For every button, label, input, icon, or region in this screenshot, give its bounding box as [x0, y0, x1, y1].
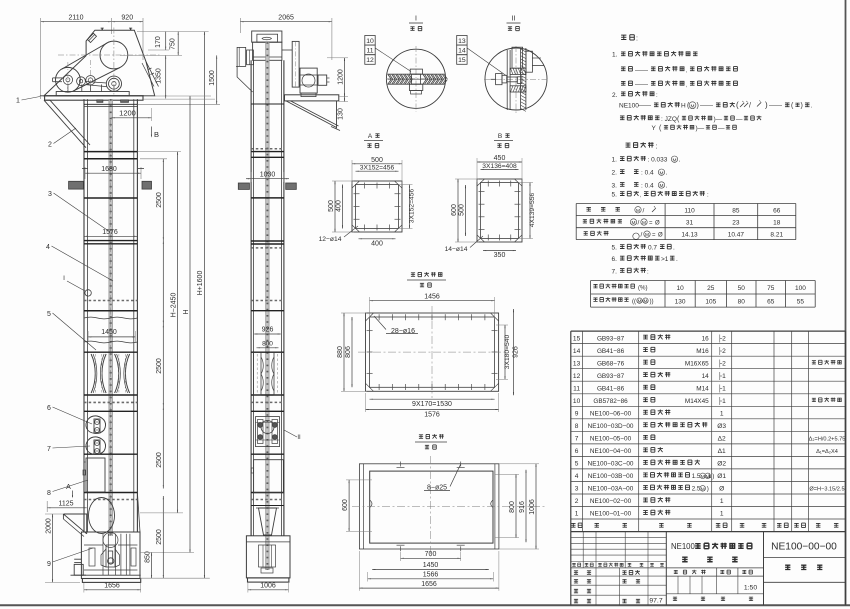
svg-text:NE100−05−00: NE100−05−00: [590, 436, 632, 443]
svg-text:700: 700: [425, 551, 437, 558]
svg-text:Δ₁=Δ₂X4: Δ₁=Δ₂X4: [816, 449, 838, 455]
svg-text:2065: 2065: [278, 15, 294, 22]
svg-text:)—: )—: [714, 116, 723, 123]
svg-text:M: M: [701, 474, 705, 480]
svg-text:10: 10: [366, 38, 374, 45]
svg-text:Ø: Ø: [719, 486, 724, 493]
svg-text:M: M: [632, 220, 636, 226]
svg-text:M: M: [691, 103, 695, 109]
svg-text:4X139=556: 4X139=556: [529, 193, 536, 228]
svg-text:——: ——: [638, 103, 652, 110]
svg-text:1: 1: [16, 98, 20, 105]
svg-text:Δ2: Δ2: [718, 436, 726, 443]
svg-text:8: 8: [575, 423, 579, 430]
svg-text:NE100−06−00: NE100−06−00: [590, 410, 632, 417]
svg-text:,: ,: [686, 82, 687, 88]
svg-text:2: 2: [575, 498, 579, 505]
svg-text:)—: )—: [696, 125, 705, 132]
svg-text:NE100−01−00: NE100−01−00: [590, 511, 632, 518]
svg-text:1656: 1656: [421, 581, 437, 588]
svg-text:├2: ├2: [718, 359, 727, 367]
svg-text:4: 4: [575, 473, 579, 480]
svg-text:M: M: [638, 299, 642, 305]
svg-text:916: 916: [519, 501, 526, 513]
svg-text:1450: 1450: [101, 329, 117, 336]
svg-text:├2: ├2: [718, 334, 727, 342]
svg-text:8: 8: [47, 490, 51, 497]
svg-text:I: I: [415, 16, 417, 23]
svg-text:A: A: [66, 484, 71, 491]
svg-text:1450: 1450: [423, 562, 439, 569]
svg-text:): ): [765, 101, 768, 110]
svg-text:800: 800: [509, 501, 516, 513]
svg-text:920: 920: [121, 15, 133, 22]
svg-text:926: 926: [262, 327, 274, 334]
svg-text:(%): (%): [638, 284, 648, 291]
svg-text:2500: 2500: [156, 358, 163, 374]
svg-text:1.: 1.: [612, 52, 618, 59]
svg-text:15: 15: [458, 57, 466, 64]
svg-text:600: 600: [451, 204, 458, 216]
svg-text:9X170=1530: 9X170=1530: [412, 401, 452, 408]
svg-text::: :: [636, 36, 638, 43]
svg-text:: 0.4: : 0.4: [641, 170, 654, 177]
svg-text:I: I: [63, 275, 65, 282]
svg-text:1006: 1006: [529, 499, 536, 515]
svg-text:M: M: [636, 208, 640, 214]
svg-text:2500: 2500: [156, 192, 163, 208]
svg-text:10.47: 10.47: [728, 232, 745, 239]
svg-text:3.: 3.: [612, 182, 618, 189]
svg-text:130: 130: [337, 108, 344, 120]
svg-text:7.: 7.: [612, 268, 618, 275]
svg-text:500: 500: [371, 157, 383, 164]
svg-text:—: —: [736, 116, 743, 123]
svg-text:.: .: [666, 182, 668, 189]
svg-text:12−ø14: 12−ø14: [319, 236, 342, 243]
svg-text:3: 3: [48, 191, 52, 198]
svg-text:25: 25: [707, 285, 715, 292]
svg-text:: 0.033: : 0.033: [648, 157, 668, 164]
svg-text:1.: 1.: [612, 157, 618, 164]
svg-text:10: 10: [676, 285, 684, 292]
svg-text:>1: >1: [661, 256, 669, 263]
svg-text:13: 13: [458, 38, 466, 45]
svg-text:H: H: [681, 103, 686, 110]
svg-text:55: 55: [797, 299, 805, 306]
svg-text:.: .: [676, 256, 678, 263]
svg-text:5: 5: [575, 461, 579, 468]
svg-text:3X180=540: 3X180=540: [504, 335, 511, 370]
svg-text:├2: ├2: [718, 347, 727, 355]
svg-text:5.: 5.: [612, 245, 618, 252]
svg-text:NE100−03A−00: NE100−03A−00: [588, 486, 634, 493]
svg-text:1:50: 1:50: [744, 584, 757, 591]
svg-text:1030: 1030: [260, 171, 276, 178]
svg-text:1656: 1656: [104, 583, 120, 590]
svg-text:1200: 1200: [337, 69, 344, 85]
svg-text:/: /: [638, 220, 640, 227]
svg-text:: 0.4: : 0.4: [641, 182, 654, 189]
svg-text:350: 350: [494, 252, 506, 259]
svg-text:Ø=H−3.15/2.5: Ø=H−3.15/2.5: [809, 487, 844, 493]
svg-text:28−ø16: 28−ø16: [391, 328, 415, 335]
svg-text:NE100−03B−00: NE100−03B−00: [588, 473, 634, 480]
svg-text:M: M: [660, 183, 664, 189]
svg-text:1350: 1350: [156, 68, 163, 84]
svg-text:5: 5: [47, 311, 51, 318]
svg-text:66: 66: [773, 208, 781, 215]
svg-text:M14X45: M14X45: [685, 398, 709, 405]
svg-text:NE100: NE100: [671, 542, 696, 551]
svg-text:/: /: [641, 232, 643, 239]
svg-text:100: 100: [795, 285, 806, 292]
svg-text:75: 75: [767, 285, 775, 292]
svg-text:14: 14: [458, 47, 466, 54]
svg-text:/: /: [749, 103, 751, 110]
svg-text:NE100−03C−00: NE100−03C−00: [588, 461, 634, 468]
svg-text:1576: 1576: [424, 411, 440, 418]
svg-text:1: 1: [720, 498, 724, 505]
svg-text:): ): [697, 103, 699, 110]
svg-text:): ): [801, 103, 803, 110]
svg-text:2110: 2110: [69, 15, 84, 22]
svg-text:9: 9: [575, 410, 579, 417]
svg-text:GB68−76: GB68−76: [597, 360, 625, 367]
svg-text:2000: 2000: [45, 518, 52, 534]
svg-text:13: 13: [573, 360, 581, 367]
svg-text:Ø3: Ø3: [717, 423, 726, 430]
svg-text:Ø: Ø: [655, 221, 660, 227]
svg-text:1456: 1456: [424, 293, 440, 300]
svg-text:6: 6: [47, 405, 51, 412]
svg-text:3X152=456: 3X152=456: [360, 165, 395, 172]
svg-text:450: 450: [494, 155, 506, 162]
svg-text:400: 400: [335, 200, 342, 212]
svg-text:12: 12: [573, 373, 581, 380]
svg-text:——: ——: [635, 67, 649, 74]
svg-text:/: /: [643, 207, 645, 214]
svg-text:14: 14: [573, 348, 581, 355]
svg-text:9: 9: [47, 561, 51, 568]
svg-text:1125: 1125: [58, 501, 73, 508]
svg-text:14.13: 14.13: [681, 232, 698, 239]
svg-text:400: 400: [371, 240, 383, 247]
svg-text:3: 3: [575, 486, 579, 493]
svg-text:806: 806: [345, 346, 352, 358]
svg-text:1: 1: [575, 511, 579, 518]
svg-text:1566: 1566: [423, 572, 439, 579]
svg-text:——: ——: [769, 103, 783, 110]
svg-text:Ø1: Ø1: [717, 473, 726, 480]
svg-text:NE100−00−00: NE100−00−00: [771, 542, 837, 553]
svg-text:NE100: NE100: [619, 103, 639, 110]
svg-text:M: M: [644, 299, 648, 305]
svg-text:15: 15: [573, 335, 581, 342]
svg-text:2.5: 2.5: [692, 486, 701, 493]
svg-text:.: .: [666, 170, 668, 177]
svg-text:├1: ├1: [718, 372, 727, 380]
svg-text:12: 12: [366, 57, 374, 64]
svg-text:3X136=408: 3X136=408: [482, 163, 517, 170]
svg-text:18: 18: [773, 220, 781, 227]
svg-text:130: 130: [675, 299, 686, 306]
svg-text:1: 1: [720, 410, 724, 417]
svg-text:M16: M16: [696, 348, 709, 355]
svg-text:): ): [707, 486, 709, 493]
svg-text:M: M: [706, 474, 710, 480]
svg-text:Ø: Ø: [658, 233, 663, 239]
svg-text:7: 7: [575, 436, 579, 443]
svg-text:=: =: [652, 233, 656, 239]
svg-text:B: B: [154, 130, 159, 139]
svg-text:II: II: [297, 435, 301, 441]
svg-text:GB93−87: GB93−87: [597, 335, 625, 342]
svg-text:750: 750: [170, 38, 177, 50]
svg-text:2.: 2.: [612, 170, 618, 177]
svg-text:105: 105: [705, 299, 716, 306]
svg-text:1006: 1006: [260, 583, 276, 590]
svg-text:,: ,: [686, 68, 687, 74]
svg-text:Δ₂=H/0.2+5.75: Δ₂=H/0.2+5.75: [809, 437, 846, 443]
svg-text:NE100−04−00: NE100−04−00: [590, 448, 632, 455]
svg-text:16: 16: [702, 335, 710, 342]
svg-text:M: M: [645, 232, 649, 238]
svg-text:H+1600: H+1600: [197, 271, 204, 296]
svg-text:4: 4: [46, 244, 50, 251]
svg-text:1500: 1500: [209, 70, 216, 86]
svg-text:0.7: 0.7: [648, 245, 657, 252]
svg-text:GB41−86: GB41−86: [597, 348, 625, 355]
svg-text:3X152=456: 3X152=456: [409, 189, 416, 224]
svg-text:2500: 2500: [156, 529, 163, 545]
svg-text:├1: ├1: [718, 384, 727, 392]
svg-text:170: 170: [155, 36, 162, 48]
svg-text:): ): [712, 473, 714, 480]
svg-text:1200: 1200: [119, 108, 136, 117]
svg-text:10: 10: [573, 398, 581, 405]
svg-text:.: .: [679, 157, 681, 164]
svg-text:850: 850: [144, 551, 151, 563]
svg-text:2: 2: [48, 142, 52, 149]
svg-text:600: 600: [342, 499, 349, 511]
svg-text:GB5782−86: GB5782−86: [593, 398, 628, 405]
svg-text:65: 65: [767, 299, 775, 306]
svg-text:50: 50: [738, 285, 746, 292]
svg-text:14−ø14: 14−ø14: [445, 246, 468, 253]
svg-text:—: —: [718, 125, 725, 132]
svg-text:110: 110: [684, 208, 695, 215]
svg-text:II: II: [512, 16, 516, 23]
svg-text:85: 85: [732, 208, 740, 215]
svg-text:M: M: [673, 157, 677, 163]
svg-text:——: ——: [635, 81, 649, 88]
svg-text:M: M: [660, 170, 664, 176]
svg-text:Y: Y: [652, 125, 657, 132]
svg-text:11: 11: [573, 385, 580, 392]
svg-text:M: M: [701, 486, 705, 492]
svg-text:5.: 5.: [612, 192, 618, 199]
svg-text:23: 23: [732, 220, 740, 227]
svg-text:7: 7: [47, 446, 51, 453]
svg-text:(: (: [736, 101, 739, 110]
svg-text:)): )): [650, 298, 654, 305]
svg-text:1: 1: [720, 511, 724, 518]
svg-text:6: 6: [575, 448, 579, 455]
svg-text:800: 800: [262, 340, 273, 347]
svg-text:GB41−86: GB41−86: [597, 385, 625, 392]
svg-text:NE100−03D−00: NE100−03D−00: [588, 423, 634, 430]
svg-text:=: =: [649, 221, 653, 227]
svg-text:NE100−02−00: NE100−02−00: [590, 498, 632, 505]
svg-text:——: ——: [700, 103, 714, 110]
svg-text:: JZQ: : JZQ: [661, 116, 677, 123]
svg-text:,: ,: [640, 193, 641, 199]
svg-text:1.5: 1.5: [692, 473, 701, 480]
svg-text:926: 926: [512, 346, 519, 358]
svg-text:80: 80: [738, 299, 746, 306]
svg-text:.: .: [673, 245, 675, 252]
svg-text:H−2450: H−2450: [170, 293, 177, 318]
svg-text:A: A: [368, 133, 373, 140]
svg-text:31: 31: [686, 220, 694, 227]
svg-text:1680: 1680: [101, 166, 117, 173]
svg-text:M16X65: M16X65: [685, 360, 709, 367]
svg-text:500: 500: [328, 200, 335, 212]
svg-text:GB93−87: GB93−87: [597, 373, 625, 380]
svg-text:Δ1: Δ1: [718, 448, 726, 455]
svg-text:880: 880: [337, 346, 344, 358]
svg-text:2.: 2.: [612, 92, 618, 99]
svg-text:97.7: 97.7: [649, 597, 662, 604]
svg-text:1576: 1576: [102, 229, 118, 236]
svg-text:Ø2: Ø2: [717, 461, 726, 468]
svg-text:M14: M14: [696, 385, 709, 392]
svg-text:6.: 6.: [612, 256, 618, 263]
svg-text:H: H: [183, 309, 190, 314]
svg-text:B: B: [498, 133, 502, 140]
svg-text:2500: 2500: [156, 452, 163, 468]
svg-text:14: 14: [702, 373, 710, 380]
svg-text:11: 11: [366, 47, 373, 54]
svg-text:├1: ├1: [718, 397, 727, 405]
svg-text:M: M: [642, 220, 646, 226]
svg-text:8.21: 8.21: [770, 232, 783, 239]
svg-text::: :: [656, 144, 658, 151]
svg-text:500: 500: [458, 204, 465, 216]
